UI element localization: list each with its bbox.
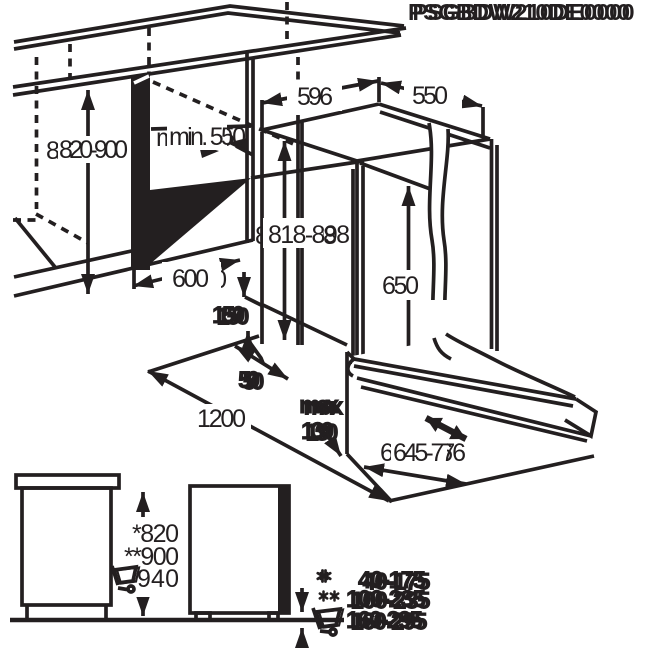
svg-text:650: 650 [382, 272, 419, 300]
svg-text:min. 550: min. 550 [169, 123, 246, 151]
svg-text:600: 600 [172, 265, 209, 293]
svg-text:PSGBDW210DE0000: PSGBDW210DE0000 [413, 0, 635, 25]
svg-text:818-898: 818-898 [268, 221, 350, 249]
svg-text:1200: 1200 [197, 405, 246, 433]
svg-text:940: 940 [137, 565, 179, 593]
svg-text:130: 130 [306, 420, 339, 447]
svg-text:645-776: 645-776 [393, 439, 466, 467]
svg-text:max: max [304, 394, 345, 421]
svg-text:160-295: 160-295 [351, 609, 428, 636]
svg-text:550: 550 [412, 82, 448, 110]
svg-text:150: 150 [217, 304, 250, 331]
svg-text:596: 596 [297, 83, 333, 111]
svg-text:50: 50 [243, 369, 265, 396]
svg-text:820-900: 820-900 [59, 136, 128, 164]
